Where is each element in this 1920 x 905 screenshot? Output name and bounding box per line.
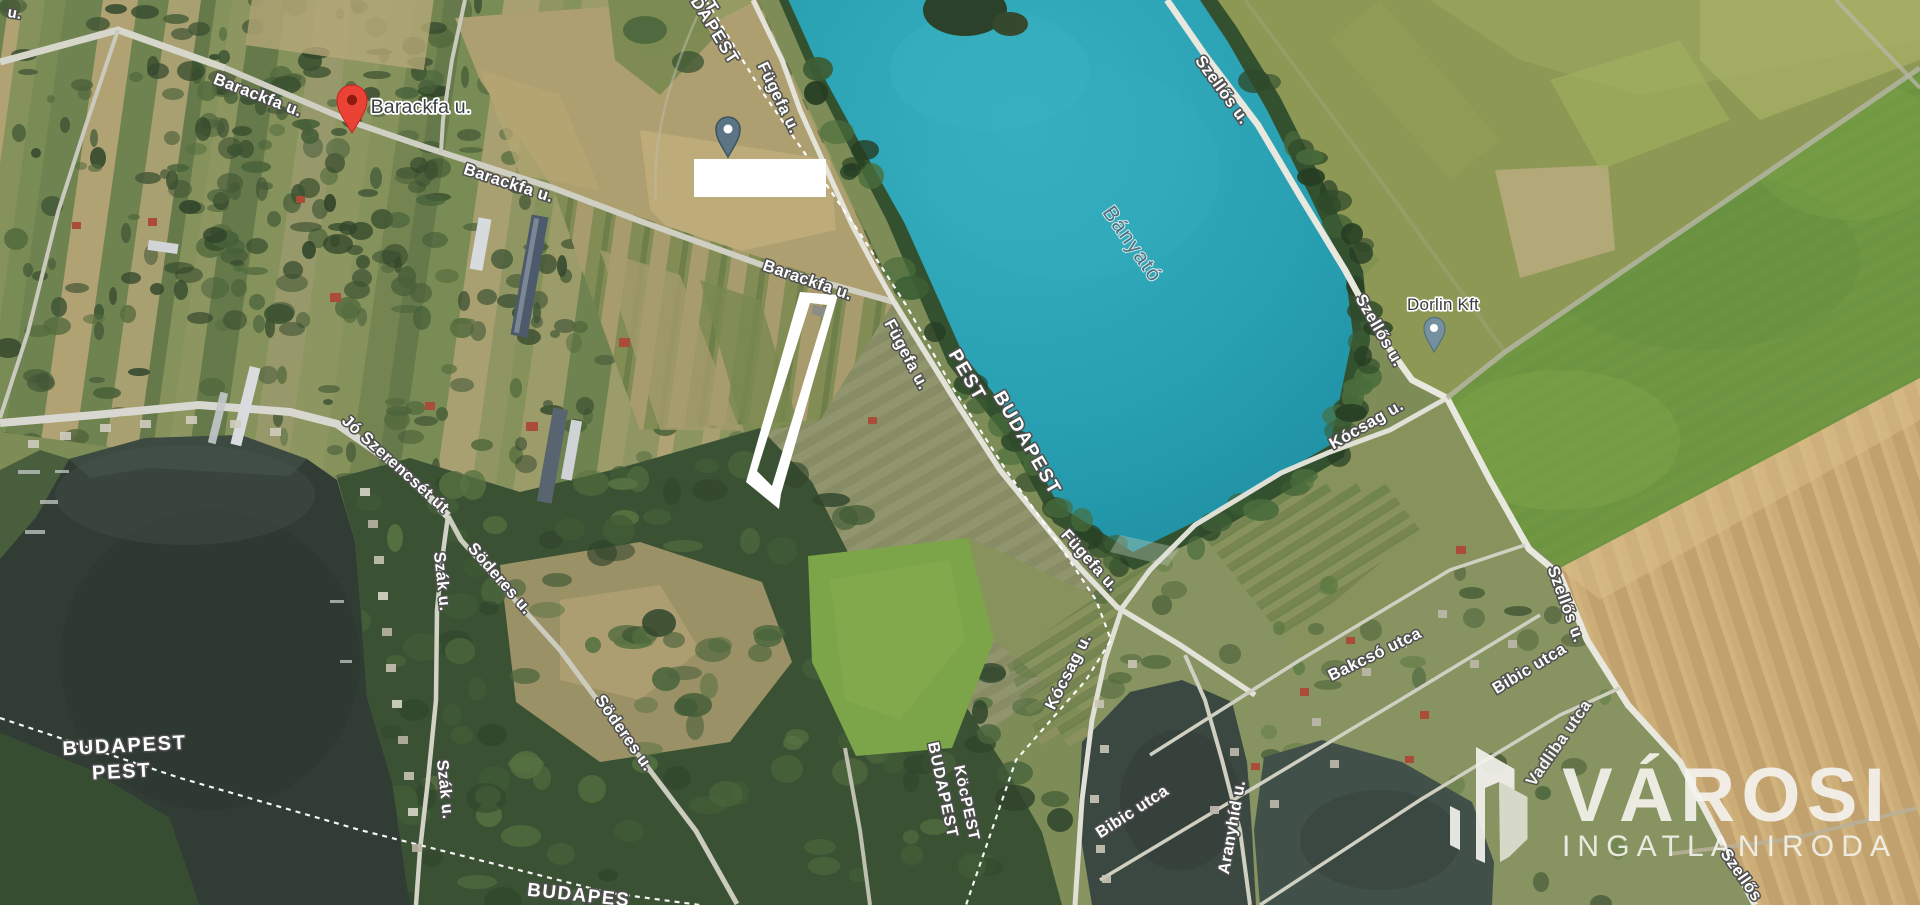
svg-text:PEST: PEST [91, 759, 152, 784]
svg-text:INGATLANIRODA: INGATLANIRODA [1562, 830, 1897, 863]
svg-text:u.: u. [6, 4, 23, 23]
svg-text:Barackfa u.: Barackfa u. [371, 96, 472, 118]
svg-text:VÁROSI: VÁROSI [1562, 753, 1891, 838]
svg-text:Dorlin Kft: Dorlin Kft [1407, 295, 1479, 314]
